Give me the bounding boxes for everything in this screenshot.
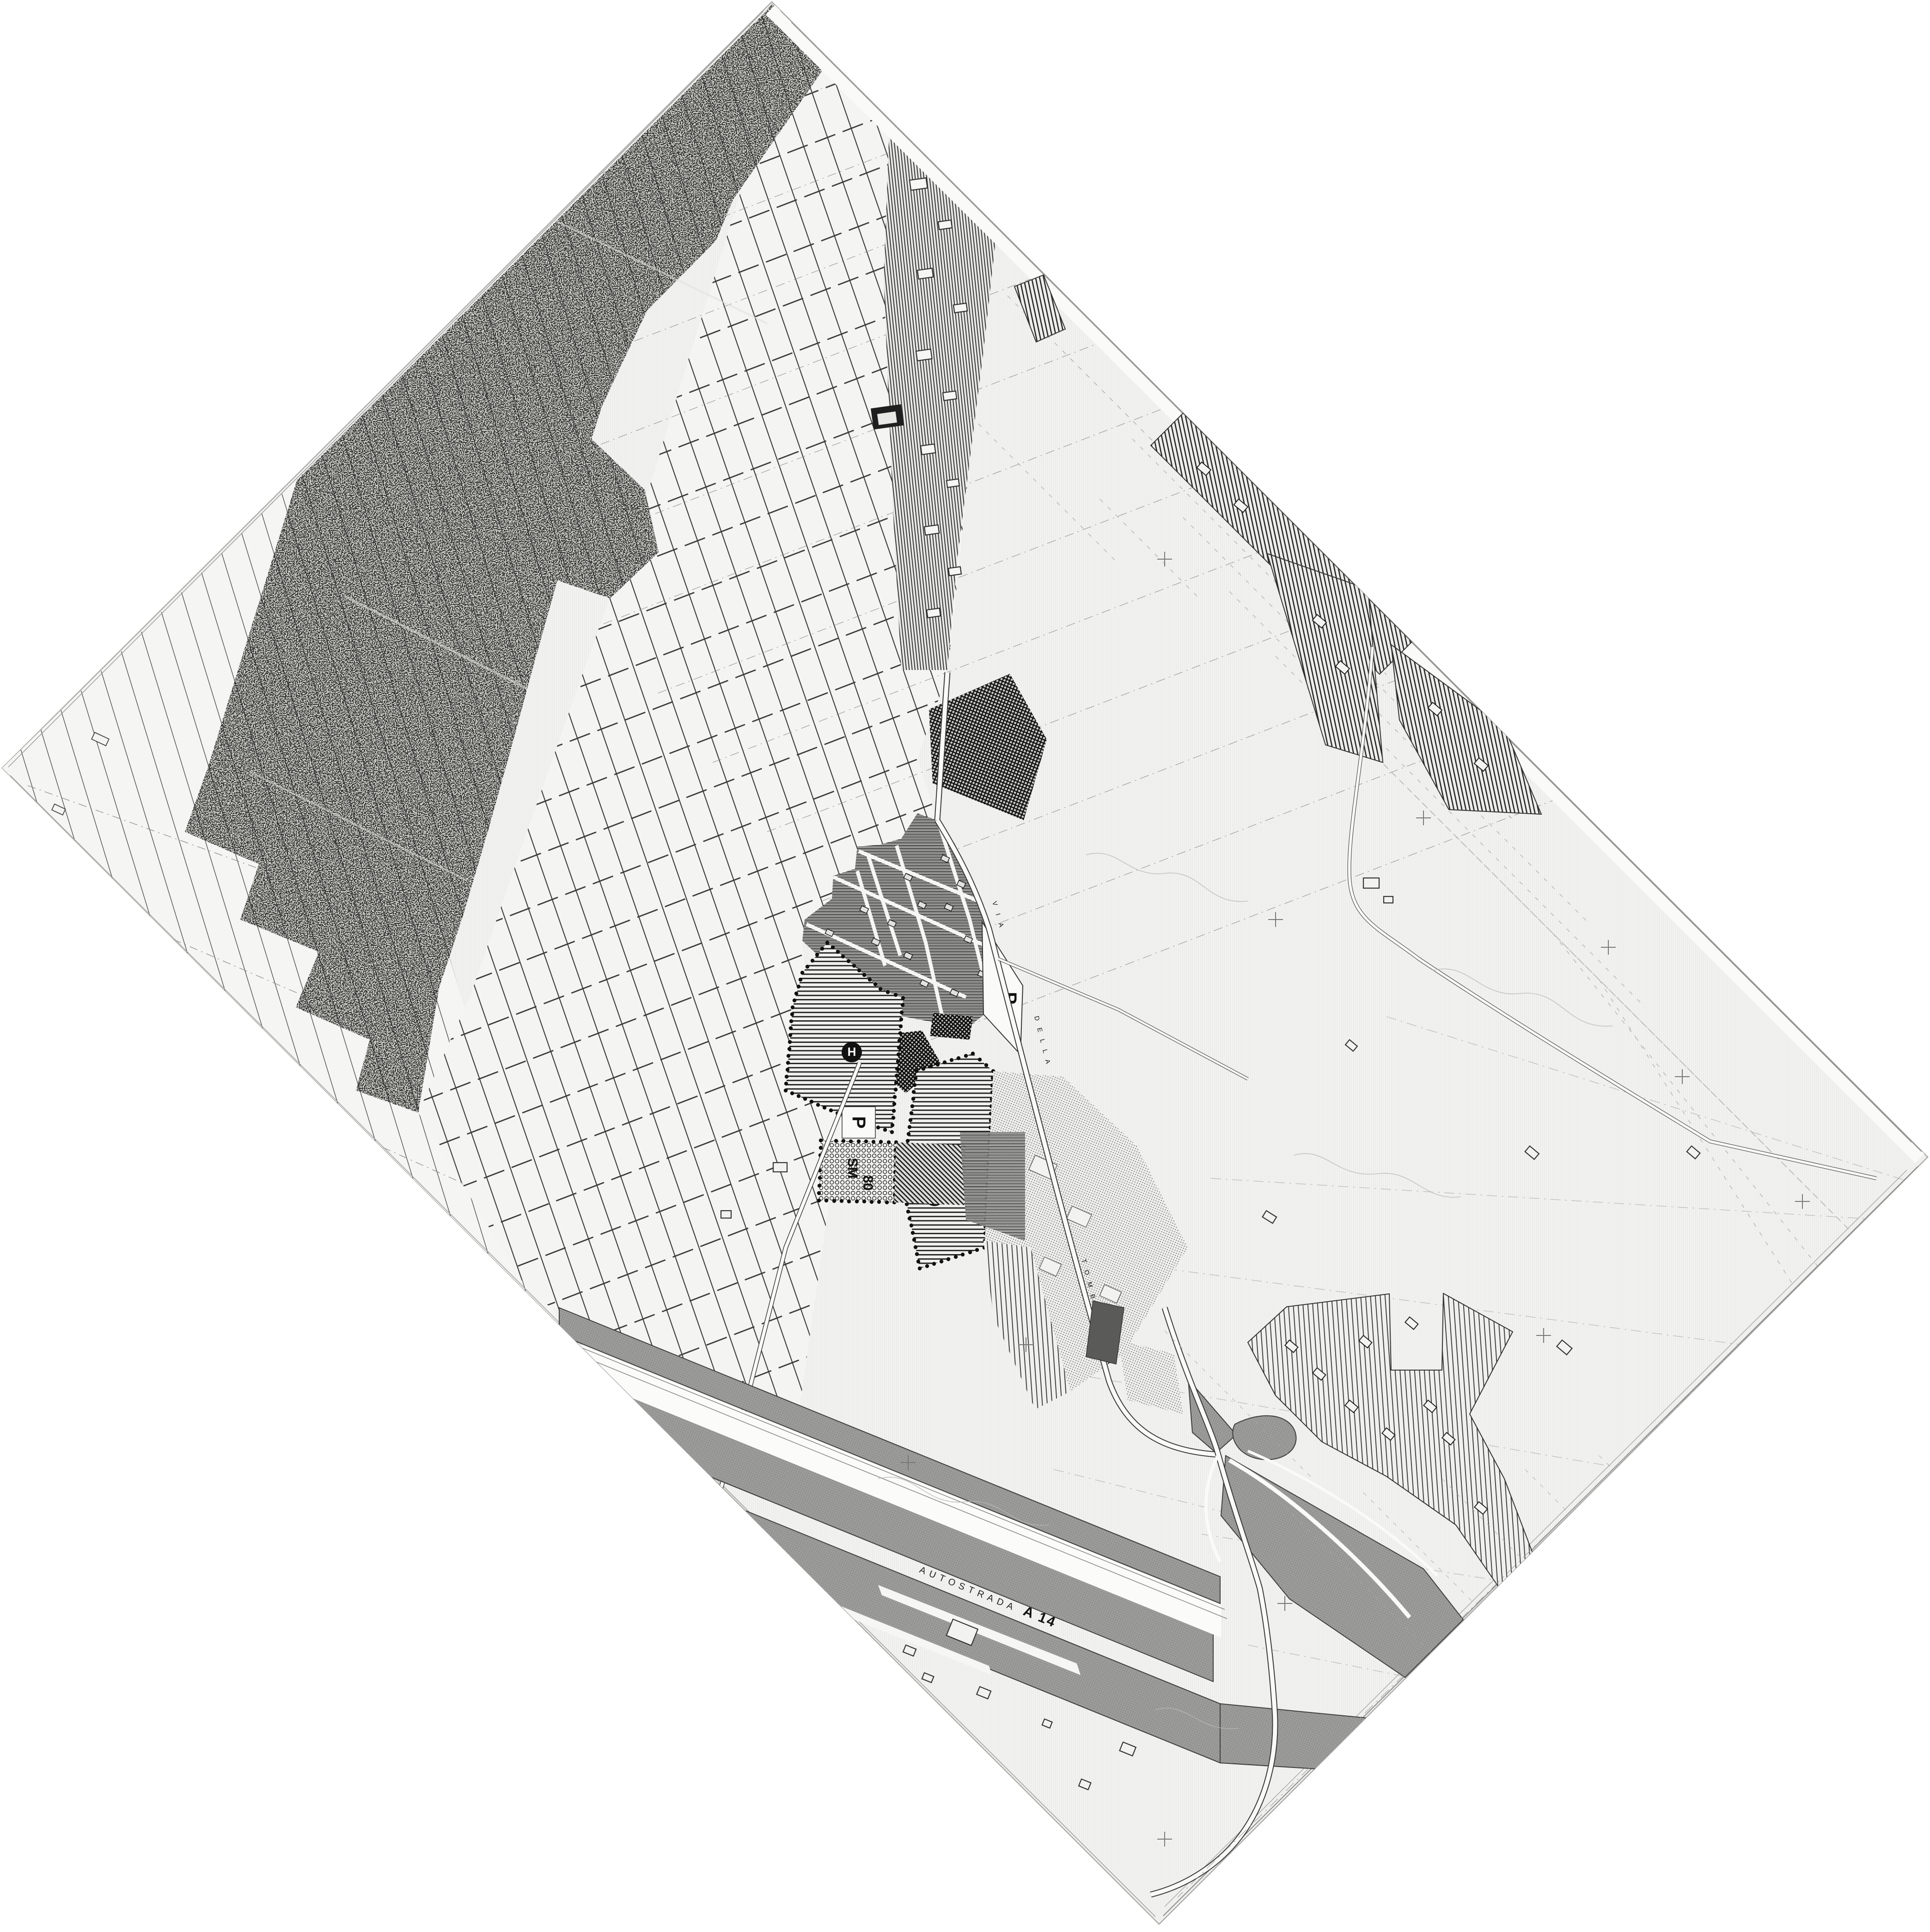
svg-text:SM: SM: [845, 1158, 860, 1179]
svg-text:H: H: [848, 1045, 856, 1059]
svg-text:P: P: [849, 1116, 869, 1129]
svg-text:80: 80: [860, 1175, 875, 1190]
